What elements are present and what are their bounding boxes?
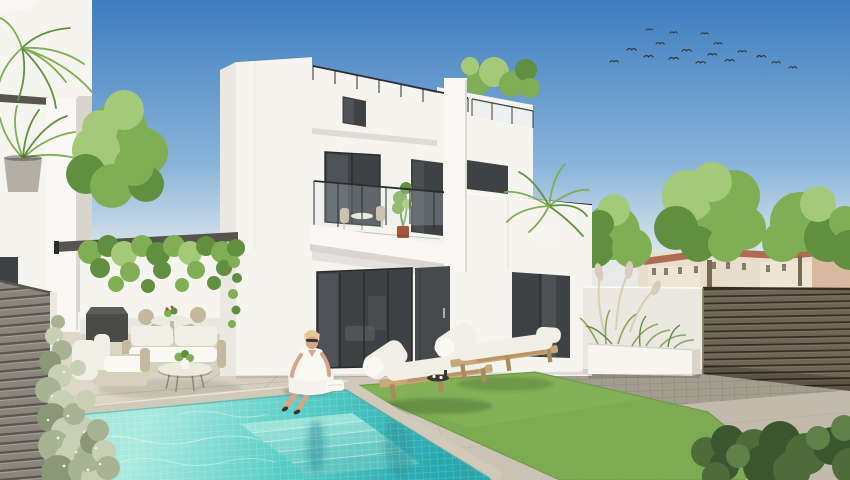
villa-exterior-render: Bright daytime 3D architectural render o… <box>0 0 850 480</box>
lounger-shadow <box>457 377 553 391</box>
privacy-fence-right <box>703 288 850 391</box>
towel <box>326 379 345 391</box>
tower-side-face <box>220 62 236 376</box>
planter-box <box>588 344 700 378</box>
pillar <box>444 78 467 272</box>
penthouse-window <box>342 96 366 127</box>
terrace-door <box>467 160 508 194</box>
tower-front-face <box>236 57 312 376</box>
sunglasses <box>306 339 318 342</box>
wing-palm-pot <box>541 228 558 249</box>
render-canvas: Bright daytime 3D architectural render o… <box>0 0 850 480</box>
